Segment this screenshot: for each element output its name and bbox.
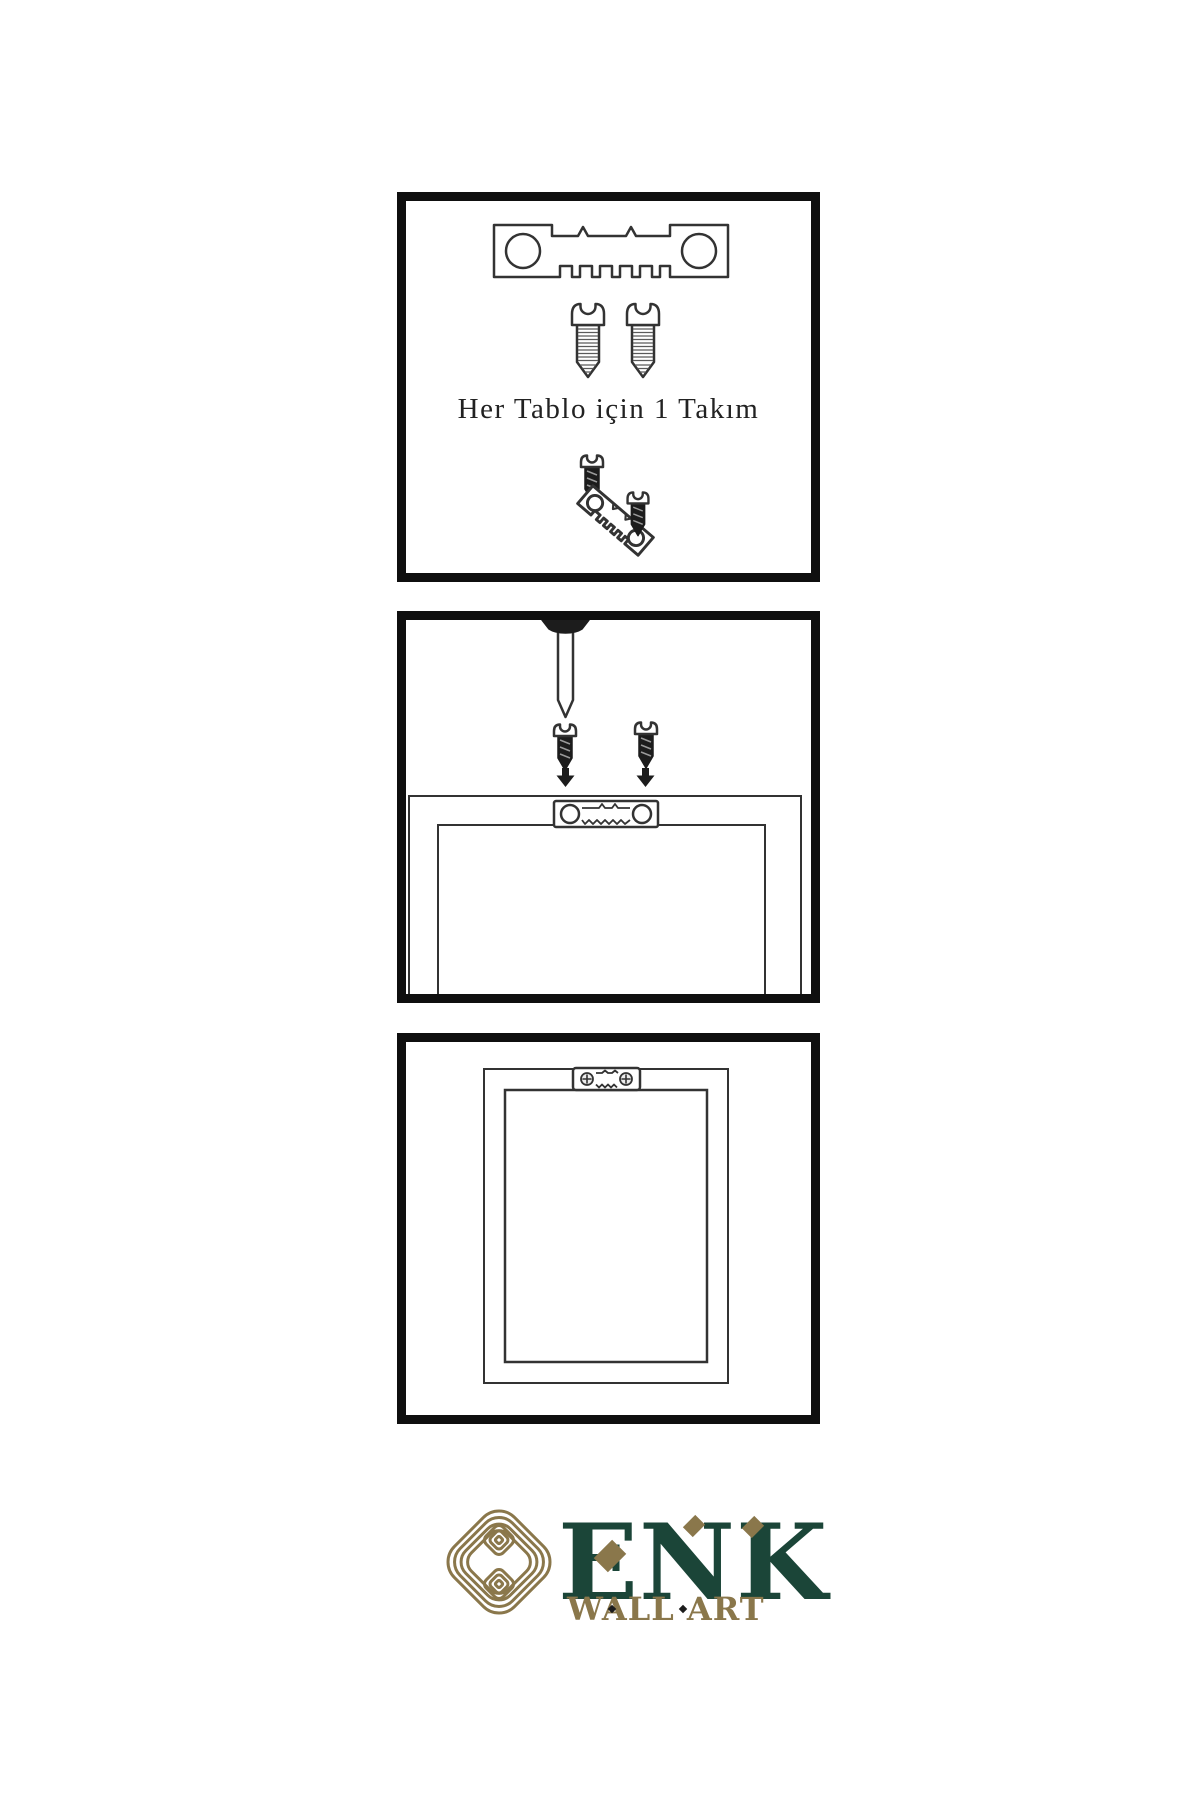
step1-panel: Her Tablo için 1 Takım xyxy=(397,192,820,582)
step2-illustration xyxy=(406,620,811,994)
wall-nail-icon xyxy=(542,620,589,717)
screw-icon xyxy=(627,304,659,377)
instruction-sheet: { "page": { "background": "#ffffff" }, "… xyxy=(0,0,1200,1800)
down-arrow-icon xyxy=(557,768,575,787)
step3-illustration xyxy=(406,1042,811,1415)
sawtooth-hanger-icon xyxy=(554,801,658,827)
step1-caption: Her Tablo için 1 Takım xyxy=(406,393,811,426)
sawtooth-hanger-icon xyxy=(494,225,728,277)
interlocking-knot-icon xyxy=(435,1498,563,1626)
dark-screw-icon xyxy=(554,725,576,771)
step2-panel xyxy=(397,611,820,1003)
screw-icon xyxy=(572,304,604,377)
knot-rings xyxy=(439,1502,559,1622)
down-arrow-icon xyxy=(637,768,655,787)
frame-front-icon xyxy=(484,1069,728,1383)
mounted-sawtooth-hanger-icon xyxy=(573,1068,640,1090)
step1-illustration xyxy=(406,201,811,573)
brand-tagline: WALL ART xyxy=(567,1593,765,1625)
step3-panel xyxy=(397,1033,820,1424)
dark-screw-icon xyxy=(635,723,657,769)
